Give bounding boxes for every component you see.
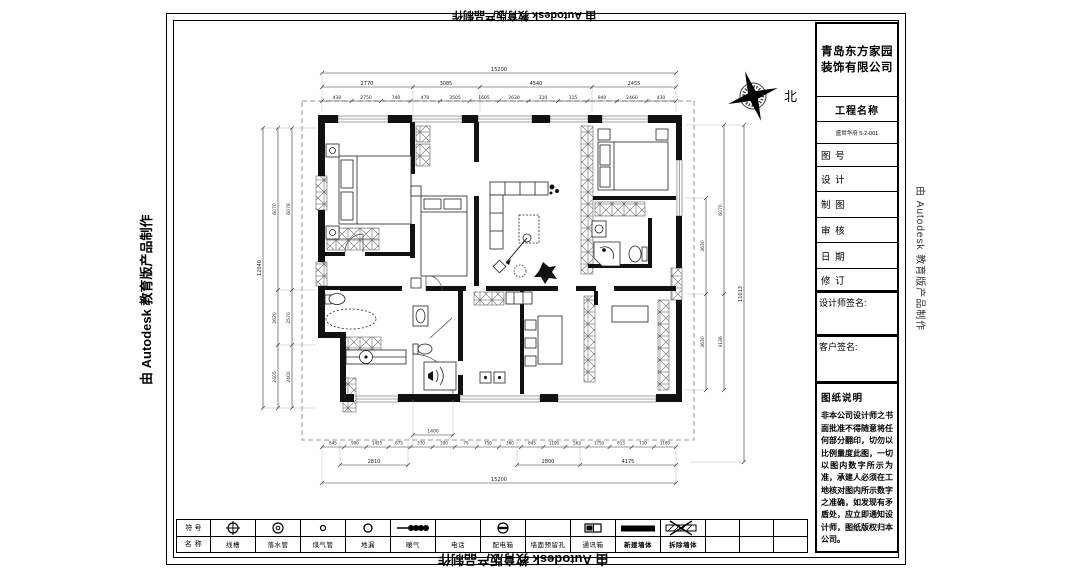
dim-label: 2750 xyxy=(360,95,372,101)
dim-label: 3505 xyxy=(449,95,461,101)
circle-bar-icon xyxy=(496,521,510,535)
dim-label: 875 xyxy=(395,441,403,446)
bathroom-ensuite xyxy=(592,221,647,266)
dim-label: 3136 xyxy=(718,336,724,348)
dim-label: 3630 xyxy=(700,240,706,252)
dim-label: 845 xyxy=(528,441,536,446)
comm-box-icon xyxy=(584,523,602,533)
company-name-line2: 装饰有限公司 xyxy=(821,60,893,76)
legend-empty-cell xyxy=(774,520,807,552)
dim-label: 2630 xyxy=(508,95,520,101)
dim-label: 370 xyxy=(417,441,425,446)
dim-label: 2570 xyxy=(286,312,292,324)
field-date: 日 期 xyxy=(817,243,897,269)
dim-label: 2810 xyxy=(368,459,381,465)
solid-bar-icon xyxy=(620,524,656,533)
dim-label: 470 xyxy=(421,95,430,101)
hatch-x-bar-icon xyxy=(662,520,704,536)
dim-label: 2460 xyxy=(626,95,638,101)
crosshair-circle-icon xyxy=(223,521,243,535)
dim-label: 430 xyxy=(657,95,666,101)
legend-item-wall-reserved-hole: 墙面预留孔 xyxy=(526,520,571,552)
designer-signature-box: 设计师签名: xyxy=(817,291,897,335)
dim-label: 11013 xyxy=(738,286,744,302)
dim-label: 2620 xyxy=(272,312,278,324)
legend-item-floor-drain: 地漏 xyxy=(346,520,391,552)
dim-label: 310 xyxy=(539,95,548,101)
notes-body: 非本公司设计师之书面批准不得随意将任何部分翻印，切勿以比例量度此图，一切以图内数… xyxy=(817,408,897,548)
client-signature-box: 客户签名: xyxy=(817,335,897,383)
dim-label: 2405 xyxy=(272,371,278,383)
floor-plan-svg: 15200 2770 3085 4540 2455 430 2750 740 4… xyxy=(230,55,810,505)
dim-label: 70 xyxy=(463,441,469,446)
drawing-sheet-page: 由 Autodesk 教育版产品制作 由 Autodesk 教育版产品制作 由 … xyxy=(0,0,1074,576)
dining-set xyxy=(525,316,562,366)
legend-item-radiator: 暖气 xyxy=(391,520,436,552)
dim-label: 115 xyxy=(569,95,578,101)
dim-label: 300 xyxy=(440,441,448,446)
dim-label: 813 xyxy=(617,441,625,446)
study-room xyxy=(480,292,532,383)
dim-label: 6070 xyxy=(718,204,724,216)
dim-label: 900 xyxy=(351,441,359,446)
legend-header-column: 符 号 名 称 xyxy=(177,520,211,552)
legend-item-telephone: 电话 xyxy=(436,520,481,552)
watermark-autodesk-top: 由 Autodesk 教育版产品制作 xyxy=(452,8,596,24)
field-review: 审 核 xyxy=(817,218,897,244)
dim-label: 3630 xyxy=(700,336,706,348)
bed-master xyxy=(326,144,411,239)
company-name-line1: 青岛东方家园 xyxy=(821,44,893,60)
title-block: 青岛东方家园 装饰有限公司 工程名称 盛世华府 5-2-001 图 号 设 计 … xyxy=(815,22,899,553)
dim-label: 12040 xyxy=(257,260,263,276)
bathroom-center xyxy=(413,306,456,390)
dim-label: 15200 xyxy=(491,67,507,73)
dim-label: 1190 xyxy=(549,441,560,446)
field-drawing-number: 图 号 xyxy=(817,144,897,167)
small-circle-icon xyxy=(318,523,328,533)
dim-label: 1455 xyxy=(372,441,383,446)
dim-label: 940 xyxy=(598,95,607,101)
dim-label: 15200 xyxy=(491,477,507,483)
legend-item-distribution-box: 配电箱 xyxy=(481,520,526,552)
legend-empty-cell xyxy=(740,520,774,552)
legend-item-cable-trench: 线槽 xyxy=(211,520,256,552)
legend-name-row-label: 名 称 xyxy=(177,537,210,551)
radiator-coil-icon xyxy=(396,522,430,534)
dim-label: 360 xyxy=(506,441,514,446)
dim-label: 2800 xyxy=(542,459,555,465)
circle-ring-icon xyxy=(271,521,285,535)
field-design: 设 计 xyxy=(817,167,897,192)
notes-title: 图纸说明 xyxy=(817,384,897,408)
dim-label: 710 xyxy=(639,441,647,446)
compass: 北 xyxy=(720,63,797,129)
field-revision: 修 订 xyxy=(817,269,897,291)
dim-label: 1400 xyxy=(427,429,439,435)
dim-label: 740 xyxy=(392,95,401,101)
dim-label: 4540 xyxy=(530,81,543,87)
dim-label: 563 xyxy=(573,441,581,446)
dim-label: 1180 xyxy=(660,441,671,446)
furniture xyxy=(325,129,668,390)
dim-label: 2400 xyxy=(286,371,292,383)
dim-label: 3085 xyxy=(440,81,453,87)
bathroom-left xyxy=(325,294,376,330)
compass-north-label: 北 xyxy=(784,90,797,105)
legend-empty-cell xyxy=(706,520,740,552)
legend-item-demolished-wall: 拆除墙体 xyxy=(661,520,706,552)
legend-symbol-row-label: 符 号 xyxy=(177,520,210,537)
dim-label: 6078 xyxy=(286,203,292,215)
legend-item-comm-box: 通讯箱 xyxy=(571,520,616,552)
legend-table: 符 号 名 称 线槽 落水管 煤气管 地漏 暖气 电话 配电箱 xyxy=(176,519,808,553)
circle-icon xyxy=(362,522,374,534)
drawing-notes-box: 图纸说明 非本公司设计师之书面批准不得随意将任何部分翻印，切勿以比例量度此图，一… xyxy=(817,382,897,551)
watermark-autodesk-bottom: 由 Autodesk 教育版产品制作 xyxy=(438,551,608,570)
legend-item-new-wall: 新建墙体 xyxy=(616,520,661,552)
bed-third xyxy=(598,129,668,190)
dim-label: 750 xyxy=(484,441,492,446)
watermark-autodesk-left: 由 Autodesk 教育版产品制作 xyxy=(136,215,155,385)
legend-item-gas-pipe: 煤气管 xyxy=(301,520,346,552)
project-name-label: 工程名称 xyxy=(817,97,897,122)
field-drafting: 制 图 xyxy=(817,192,897,218)
project-name-value: 盛世华府 5-2-001 xyxy=(817,122,897,144)
dim-label: 1750 xyxy=(594,441,605,446)
bed-second xyxy=(411,186,467,288)
dim-label: 6070 xyxy=(272,203,278,215)
watermark-autodesk-right: 由 Autodesk 教育版产品制作 xyxy=(914,186,929,331)
dim-label: 1605 xyxy=(478,95,490,101)
dim-label: 430 xyxy=(333,95,342,101)
compass-star-icon xyxy=(720,63,786,129)
balcony-table xyxy=(612,306,648,322)
dim-label: 845 xyxy=(329,441,337,446)
extension-lines xyxy=(261,73,742,484)
dim-label: 2770 xyxy=(361,81,374,87)
dim-label: 2455 xyxy=(628,81,641,87)
company-name: 青岛东方家园 装饰有限公司 xyxy=(817,24,897,97)
dim-label: 4175 xyxy=(622,459,635,465)
legend-item-downpipe: 落水管 xyxy=(256,520,301,552)
kitchen xyxy=(346,350,406,364)
plant xyxy=(534,185,559,285)
